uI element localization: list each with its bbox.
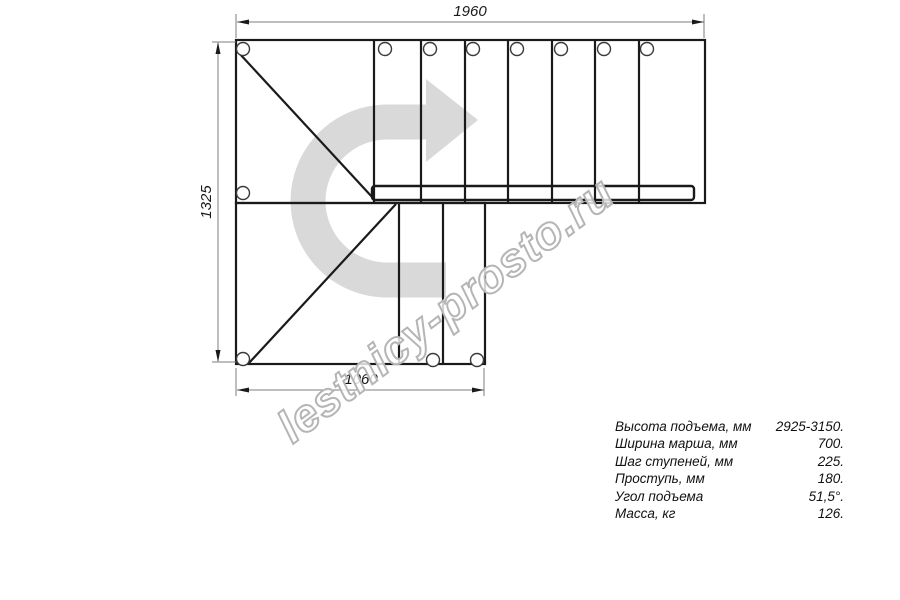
spec-value: 2925-3150.: [776, 418, 844, 435]
dimension-top-width: 1960: [453, 3, 487, 20]
dimension-left-height: 1325: [198, 185, 215, 219]
spec-label: Ширина марша, мм: [615, 435, 738, 452]
spec-row-step-pitch: Шаг ступеней, мм 225.: [615, 453, 844, 470]
spec-row-height: Высота подъема, мм 2925-3150.: [615, 418, 844, 435]
direction-arrow-icon: [308, 79, 478, 280]
spec-value: 51,5°.: [809, 488, 844, 505]
spec-row-mass: Масса, кг 126.: [615, 505, 844, 522]
spec-value: 180.: [818, 470, 844, 487]
spec-value: 126.: [818, 505, 844, 522]
spec-label: Масса, кг: [615, 505, 675, 522]
spec-row-angle: Угол подъема 51,5°.: [615, 488, 844, 505]
spec-label: Шаг ступеней, мм: [615, 453, 733, 470]
spec-row-tread: Проступь, мм 180.: [615, 470, 844, 487]
spec-row-flight-width: Ширина марша, мм 700.: [615, 435, 844, 452]
spec-table: Высота подъема, мм 2925-3150. Ширина мар…: [615, 418, 844, 522]
spec-label: Высота подъема, мм: [615, 418, 751, 435]
dimension-arrowheads: [216, 20, 705, 393]
drawing-canvas: 1960 1325 1060 lestnicy-prosto.ru Высота…: [0, 0, 900, 600]
spec-value: 225.: [818, 453, 844, 470]
spec-label: Угол подъема: [615, 488, 703, 505]
spec-value: 700.: [818, 435, 844, 452]
spec-label: Проступь, мм: [615, 470, 705, 487]
